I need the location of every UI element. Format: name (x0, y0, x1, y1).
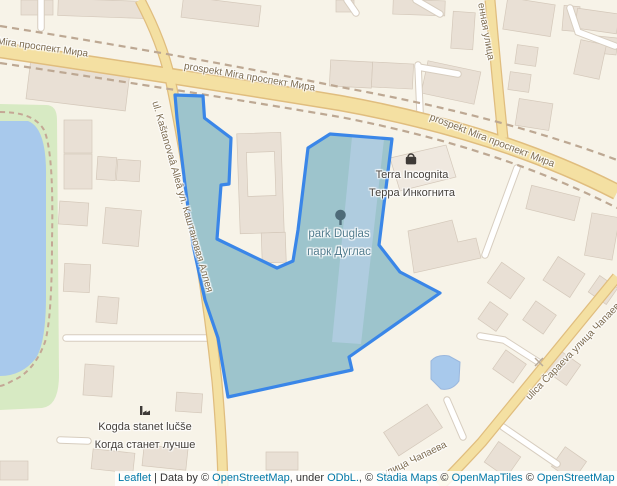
map-tiles (0, 0, 617, 486)
attribution-text: , under (290, 472, 327, 484)
attribution-text: © (523, 472, 537, 484)
openstreetmap-link[interactable]: OpenStreetMap (212, 472, 290, 484)
attribution-text: | Data by © (151, 472, 212, 484)
poi-terra-incognita-cyrillic: Терра Инкогнита (369, 187, 455, 199)
poi-kogda-latin: Kogda stanet lučše (98, 421, 192, 433)
attribution-bar: Leaflet | Data by © OpenStreetMap, under… (115, 471, 617, 486)
leaflet-map[interactable]: Mira проспект Мира prospekt Mira проспек… (0, 0, 617, 486)
attribution-text: © (437, 472, 451, 484)
poi-terra-incognita-latin: Terra Incognita (376, 169, 449, 181)
leaflet-link[interactable]: Leaflet (118, 472, 151, 484)
openmaptiles-link[interactable]: OpenMapTiles (452, 472, 523, 484)
openstreetmap-link-2[interactable]: OpenStreetMap (537, 472, 615, 484)
pond (0, 121, 46, 376)
poi-park-duglas-latin: park Duglas (308, 228, 369, 240)
green-area (0, 104, 59, 410)
odbl-link[interactable]: ODbL. (327, 472, 359, 484)
poi-kogda-cyrillic: Когда станет лучше (95, 439, 196, 451)
poi-park-duglas-cyrillic: парк Дуглас (307, 246, 371, 258)
stadia-maps-link[interactable]: Stadia Maps (376, 472, 437, 484)
attribution-text: , © (359, 472, 376, 484)
l-building-south (266, 452, 298, 470)
